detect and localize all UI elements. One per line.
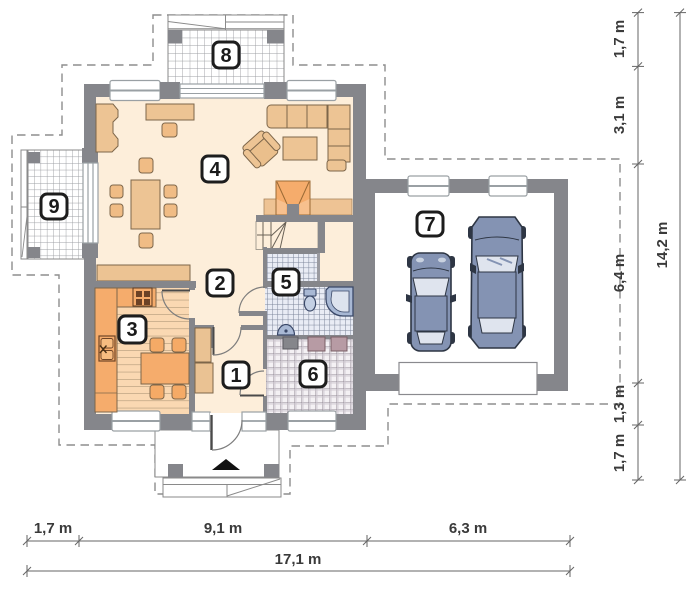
svg-text:3,1 m: 3,1 m: [611, 96, 628, 134]
svg-text:1,7 m: 1,7 m: [611, 20, 628, 58]
svg-text:2: 2: [214, 273, 225, 295]
svg-text:6,3 m: 6,3 m: [449, 520, 487, 537]
svg-text:8: 8: [220, 45, 231, 67]
svg-text:1,7 m: 1,7 m: [611, 434, 628, 472]
svg-text:6: 6: [307, 364, 318, 386]
svg-text:17,1 m: 17,1 m: [275, 551, 322, 568]
svg-text:6,4 m: 6,4 m: [611, 254, 628, 292]
svg-text:7: 7: [424, 214, 435, 236]
svg-text:1,3 m: 1,3 m: [611, 385, 628, 423]
svg-text:3: 3: [126, 319, 137, 341]
svg-text:9,1 m: 9,1 m: [204, 520, 242, 537]
svg-text:4: 4: [209, 159, 221, 181]
svg-text:9: 9: [48, 196, 59, 218]
svg-text:1: 1: [230, 365, 241, 387]
svg-text:5: 5: [280, 272, 291, 294]
svg-text:1,7 m: 1,7 m: [34, 520, 72, 537]
svg-text:14,2 m: 14,2 m: [654, 222, 671, 269]
